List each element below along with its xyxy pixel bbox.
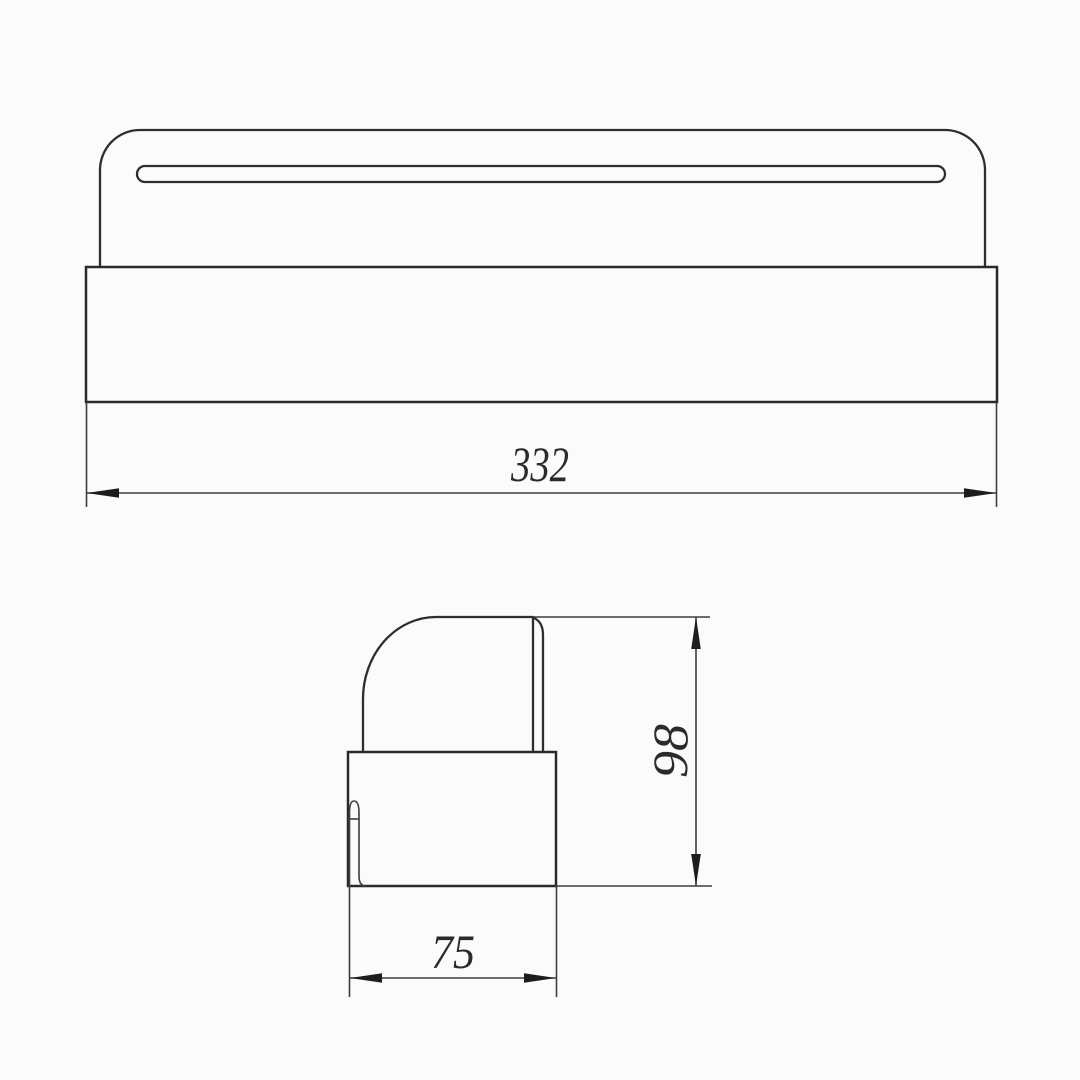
side-view-cap-outline bbox=[363, 617, 533, 752]
arrowhead-up-icon bbox=[691, 617, 701, 649]
drawing-sheet: 332 98 bbox=[0, 0, 1080, 1080]
side-width-dimension: 75 bbox=[350, 886, 557, 997]
side-height-dimension: 98 bbox=[533, 617, 712, 886]
side-view bbox=[348, 617, 556, 886]
side-view-inner-curl bbox=[350, 801, 367, 886]
side-view-cap-right-edge bbox=[534, 618, 543, 752]
front-width-value: 332 bbox=[510, 436, 569, 492]
technical-drawing-canvas: 332 98 bbox=[0, 0, 1080, 1080]
side-view-base bbox=[348, 752, 556, 886]
arrowhead-left-icon bbox=[350, 973, 382, 983]
arrowhead-right-icon bbox=[964, 488, 997, 498]
arrowhead-left-icon bbox=[87, 488, 120, 498]
arrowhead-right-icon bbox=[524, 973, 556, 983]
front-view-top-plate-outline bbox=[100, 130, 985, 267]
front-view-slot bbox=[137, 166, 945, 182]
front-view-base bbox=[86, 267, 997, 402]
side-height-value: 98 bbox=[642, 724, 698, 778]
side-width-value: 75 bbox=[431, 926, 475, 979]
arrowhead-down-icon bbox=[691, 854, 701, 886]
front-width-dimension: 332 bbox=[87, 402, 997, 507]
front-view bbox=[86, 130, 997, 402]
